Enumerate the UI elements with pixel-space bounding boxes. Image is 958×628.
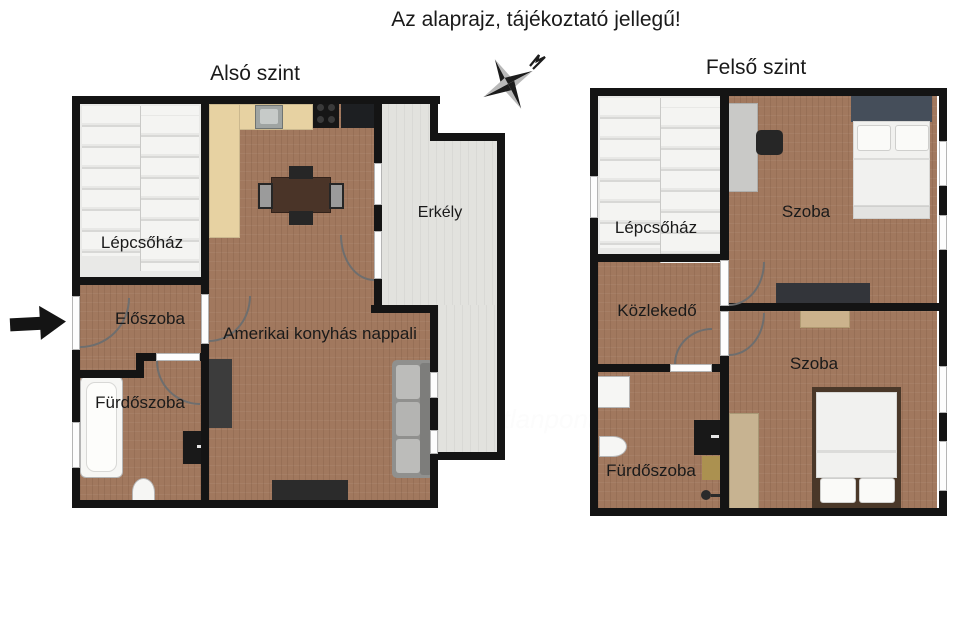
- bed-headboard: [851, 95, 932, 122]
- desk-chair: [756, 130, 783, 155]
- bed-fold-line: [853, 158, 930, 160]
- room-label-room-bottom: Szoba: [790, 354, 838, 374]
- wall: [72, 500, 438, 508]
- floor-balcony-strip: [380, 103, 432, 143]
- room-label-hall: Előszoba: [115, 309, 185, 329]
- upper-plan-heading: Felső szint: [706, 56, 806, 80]
- lower-plan-heading: Alsó szint: [210, 62, 300, 86]
- wall: [72, 370, 142, 378]
- stove-burner: [328, 116, 335, 123]
- wall: [72, 277, 209, 285]
- stool: [701, 490, 711, 500]
- staircase-window: [590, 176, 598, 218]
- sofa-cushion: [396, 439, 420, 473]
- door-corridor-room-bottom: [720, 311, 729, 356]
- tv-cabinet: [272, 480, 348, 502]
- entrance-arrow-icon: [7, 305, 67, 342]
- pillow: [857, 125, 891, 151]
- room-label-balcony: Erkély: [418, 204, 462, 222]
- room-label-room-top: Szoba: [782, 202, 830, 222]
- wall: [371, 305, 438, 313]
- dining-chair: [289, 166, 313, 179]
- refrigerator: [341, 100, 374, 128]
- wall: [430, 452, 505, 460]
- pillow: [895, 125, 929, 151]
- kitchen-counter-left: [209, 104, 240, 238]
- bed-bottom-room: [816, 392, 897, 478]
- wall: [497, 133, 505, 460]
- dining-chair: [258, 183, 273, 209]
- wall: [590, 88, 598, 516]
- bathroom-sink: [597, 376, 630, 408]
- shower-handle: [711, 435, 719, 438]
- pillow: [820, 478, 856, 503]
- room-label-living: Amerikai konyhás nappali: [223, 324, 417, 344]
- bedroom-window: [939, 366, 947, 413]
- desk: [727, 103, 758, 192]
- floor-balcony-main: [380, 141, 499, 309]
- sofa-cushion: [396, 402, 420, 436]
- stairs-right-column: [661, 98, 720, 263]
- room-label-bathroom-upper: Fürdőszoba: [606, 461, 696, 481]
- dining-chair: [289, 211, 313, 225]
- door-hall-living: [201, 294, 209, 344]
- bed-foot-bench: [853, 206, 930, 219]
- floor-plan-canvas: Az alaprajz, tájékoztató jellegű! Alsó s…: [0, 0, 958, 628]
- wardrobe-bedroom: [729, 413, 759, 512]
- bedroom-window: [939, 141, 947, 186]
- stove-burner: [317, 104, 324, 111]
- stairs-divider: [660, 98, 661, 263]
- door-hall-bathroom: [156, 353, 200, 361]
- living-window: [430, 430, 438, 454]
- compass-star-icon: [468, 50, 550, 114]
- wall: [72, 96, 440, 104]
- toilet-upper: [599, 436, 627, 457]
- wall: [590, 88, 947, 96]
- wall: [430, 305, 438, 508]
- room-label-staircase-lower: Lépcsőház: [101, 233, 183, 253]
- stove-burner: [328, 104, 335, 111]
- wall: [720, 303, 947, 311]
- room-label-bathroom-lower: Fürdőszoba: [95, 393, 185, 413]
- sideboard: [776, 283, 870, 303]
- room-label-corridor: Közlekedő: [617, 301, 696, 321]
- rug: [800, 309, 850, 328]
- bathroom-window: [72, 422, 80, 468]
- stove-burner: [317, 116, 324, 123]
- balcony-door: [374, 231, 382, 279]
- kitchen-sink-basin: [260, 109, 278, 124]
- entrance-door: [72, 296, 80, 350]
- wall: [590, 254, 728, 262]
- sofa-cushion: [396, 365, 420, 399]
- door-corridor-bathroom: [670, 364, 712, 372]
- wall: [590, 508, 947, 516]
- wall: [430, 133, 505, 141]
- dining-chair: [329, 183, 344, 209]
- balcony-window: [374, 163, 382, 205]
- bedroom-window: [939, 441, 947, 491]
- wardrobe-living: [209, 359, 232, 428]
- living-window: [430, 372, 438, 398]
- dining-table: [271, 177, 331, 213]
- door-corridor-room-top: [720, 260, 729, 306]
- room-label-staircase-upper: Lépcsőház: [615, 218, 697, 238]
- pillow: [859, 478, 895, 503]
- bedroom-window: [939, 215, 947, 250]
- disclaimer-title: Az alaprajz, tájékoztató jellegű!: [391, 8, 681, 32]
- bed-fold-line: [816, 450, 897, 453]
- floor-balcony-lower: [438, 305, 499, 454]
